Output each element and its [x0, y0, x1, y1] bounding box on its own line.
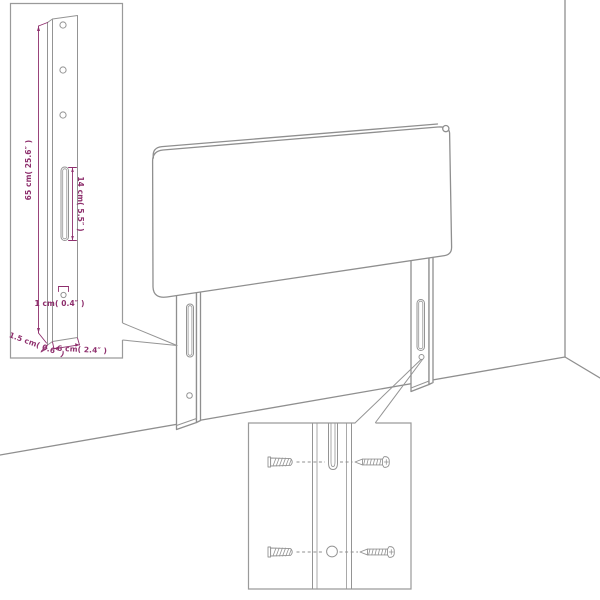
headboard-assembly-diagram: 65 cm( 25.6″ ) 14 cm( 5.5″ ) 1 cm( 0.4″ … — [0, 0, 600, 600]
mount-detail-inset — [249, 423, 412, 589]
leg-side-view — [48, 16, 78, 346]
dimension-label-hole: 1 cm( 0.4″ ) — [34, 299, 84, 308]
dimension-label-slot: 14 cm( 5.5″ ) — [76, 176, 85, 231]
left-leg-side-face — [197, 284, 201, 423]
dimension-label-height: 65 cm( 25.6″ ) — [24, 140, 33, 201]
panel-front-face — [153, 127, 452, 297]
inset-fill — [249, 423, 412, 589]
diagram-canvas: 65 cm( 25.6″ ) 14 cm( 5.5″ ) 1 cm( 0.4″ … — [0, 0, 600, 600]
callout-lines-left-inset — [123, 323, 178, 346]
right-leg-hole — [419, 355, 424, 360]
left-leg-slot — [187, 304, 194, 357]
panel-top-roll-end-cap — [443, 126, 449, 132]
callout-line — [123, 323, 178, 346]
callout-line — [376, 360, 423, 423]
leg-side-face — [48, 19, 53, 345]
headboard-panel — [153, 124, 452, 297]
left-leg-hole — [187, 393, 193, 399]
floor-edge-right — [565, 357, 600, 378]
right-leg-slot — [417, 300, 425, 351]
leg-detail-inset: 65 cm( 25.6″ ) 14 cm( 5.5″ ) 1 cm( 0.4″ … — [8, 4, 123, 359]
right-leg-side-face — [429, 251, 433, 385]
callout-line — [123, 340, 178, 346]
